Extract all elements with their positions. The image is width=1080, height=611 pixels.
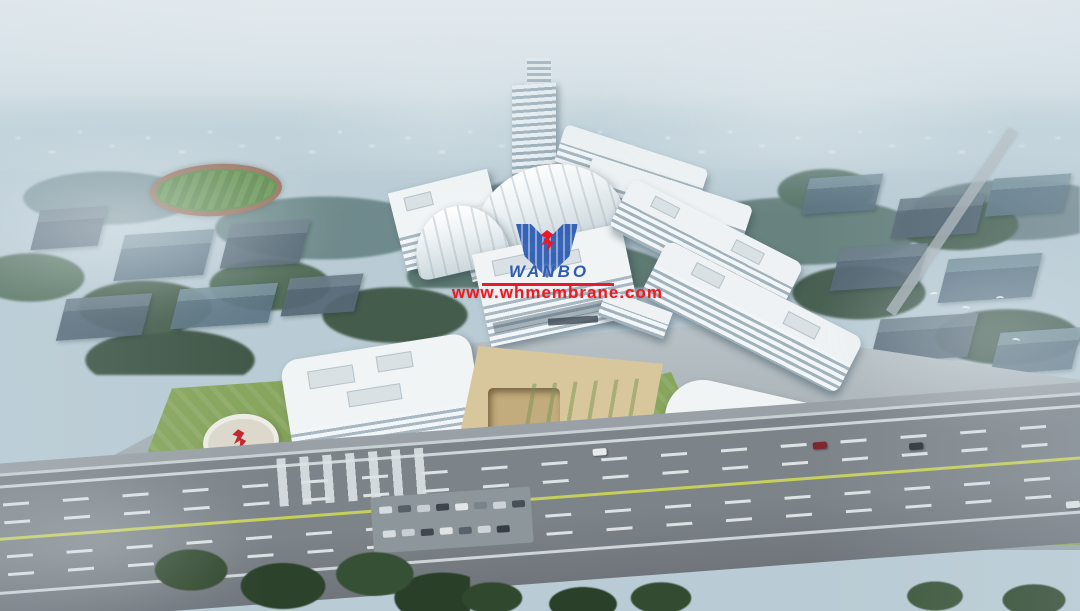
- mist-patch: [290, 50, 600, 180]
- car: [592, 448, 606, 456]
- watermark: WANBO www.whmembrane.com: [440, 220, 675, 306]
- mist-patch: [590, 30, 1020, 200]
- car: [813, 441, 827, 449]
- parked-car-row: [379, 506, 392, 514]
- aerial-rendering-scene: WANBO www.whmembrane.com: [0, 0, 1080, 611]
- car: [909, 442, 923, 450]
- car: [1066, 501, 1080, 509]
- wanbo-logo-text: WANBO: [440, 262, 658, 282]
- right-district-block: [984, 173, 1071, 216]
- foreground-trees: [880, 574, 1080, 611]
- foreground-trees: [440, 576, 700, 611]
- watermark-url: www.whmembrane.com: [440, 283, 675, 303]
